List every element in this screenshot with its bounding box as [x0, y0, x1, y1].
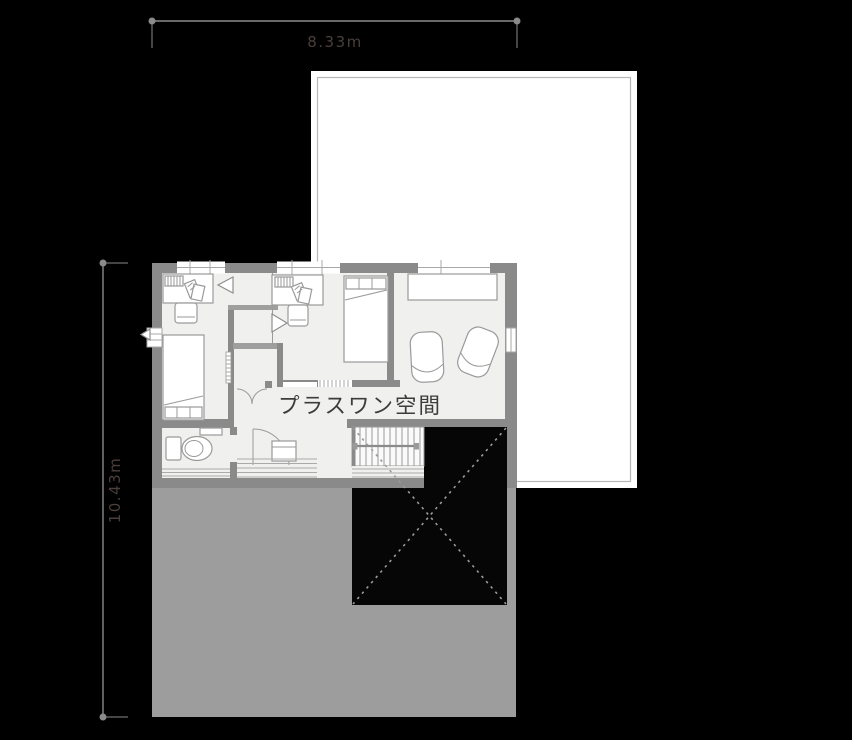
wall-under-stairs: [352, 478, 424, 488]
wall-stub-hall: [265, 381, 272, 388]
wall-closet-divider-upper: [228, 305, 278, 310]
toilet-icon: [166, 437, 212, 461]
width-dimension: 8.33m: [149, 18, 521, 52]
bookshelf-icon: [165, 276, 183, 286]
floor-plan-canvas: プラスワン空間 8.33m 10.43m: [0, 0, 852, 740]
wall-toilet-stub-bottom: [230, 462, 237, 478]
vent-triangle-icon: [141, 329, 150, 340]
floor-plan-page: プラスワン空間 8.33m 10.43m: [0, 0, 852, 740]
height-dimension-label: 10.43m: [106, 457, 124, 524]
window-icon-bedroom1: [177, 260, 225, 275]
bookshelf-icon: [275, 277, 293, 287]
bed-icon: [163, 335, 204, 420]
stairs-icon: [352, 427, 424, 488]
bed-icon: [344, 276, 388, 362]
stair-landing: [352, 466, 424, 478]
washbasin-icon: [272, 441, 296, 461]
office-chair-icon: [175, 303, 197, 323]
office-chair-icon: [288, 305, 308, 326]
lounge-chair-icon: [410, 331, 445, 383]
width-dimension-label: 8.33m: [307, 33, 363, 51]
shelf-icon: [200, 428, 222, 435]
window-icon-plusone: [418, 260, 490, 275]
dimension-endpoint-dot: [149, 18, 156, 25]
rail-post: [353, 443, 358, 450]
wall-closet-divider-lower: [233, 343, 283, 349]
wall-closet-right: [277, 343, 283, 387]
dimension-endpoint-dot: [100, 260, 107, 267]
wall-left: [152, 263, 162, 488]
window-sill: [283, 382, 317, 387]
wall-toilet-stub-top: [230, 427, 237, 435]
window-icon-left-wall: [141, 328, 162, 347]
rail-post: [414, 443, 419, 450]
window-icon-bedroom2: [277, 260, 340, 275]
height-dimension: 10.43m: [100, 260, 129, 721]
dimension-endpoint-dot: [514, 18, 521, 25]
window-icon-right-wall: [506, 328, 516, 352]
sideboard-icon: [408, 274, 497, 300]
sliding-door-hatch: [226, 352, 231, 383]
dimension-endpoint-dot: [100, 714, 107, 721]
room-label: プラスワン空間: [278, 394, 442, 419]
